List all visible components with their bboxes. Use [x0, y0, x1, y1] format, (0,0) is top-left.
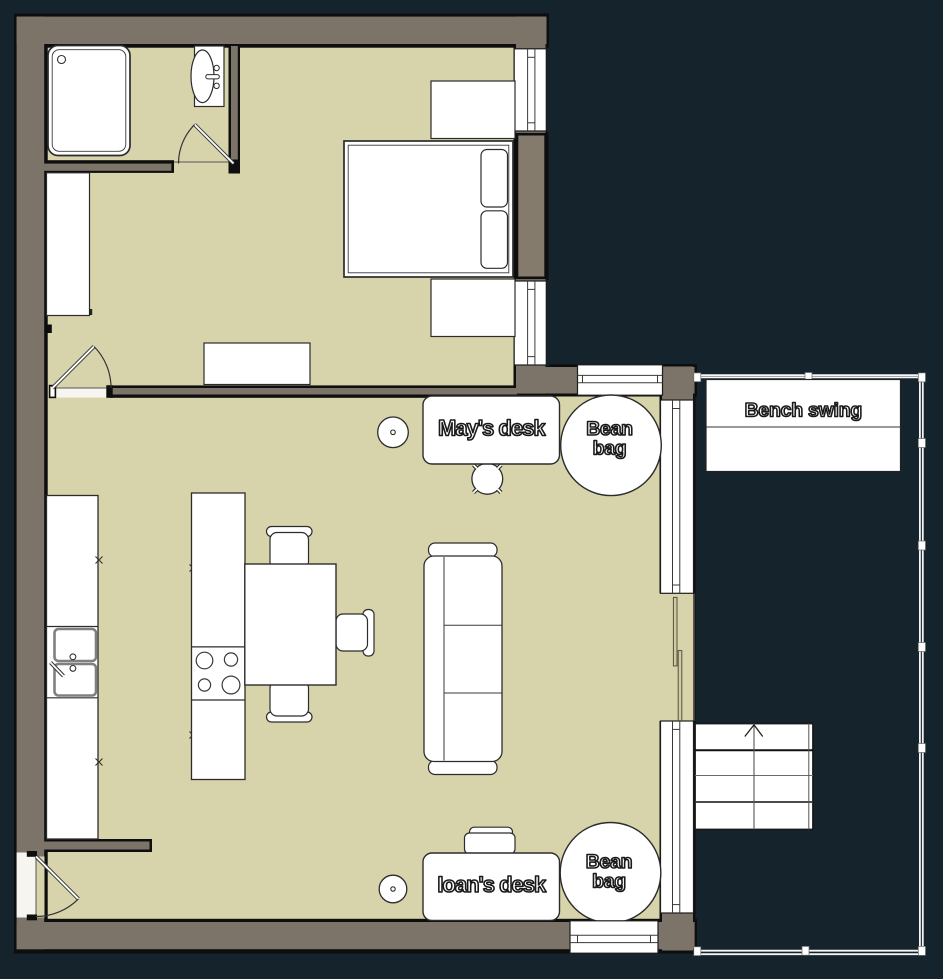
svg-text:bag: bag [592, 871, 626, 893]
svg-text:Ioan's desk: Ioan's desk [437, 872, 547, 897]
svg-text:May's desk: May's desk [438, 416, 546, 441]
svg-text:bag: bag [593, 437, 627, 459]
svg-text:Bench swing: Bench swing [745, 400, 862, 422]
